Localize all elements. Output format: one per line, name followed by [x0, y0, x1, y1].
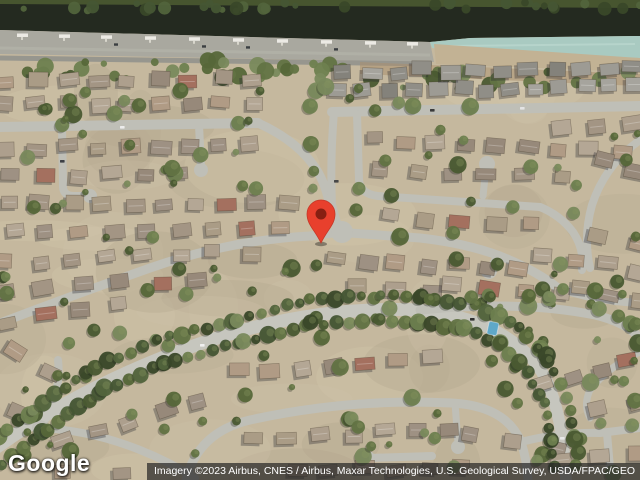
attribution-text: Imagery ©2023 Airbus, CNES / Airbus, Max… — [154, 465, 635, 477]
google-logo[interactable]: Google — [8, 450, 90, 477]
pin-body — [307, 200, 335, 243]
pin-inner-dot — [316, 209, 327, 220]
map-viewport[interactable]: Google Imagery ©2023 Airbus, CNES / Airb… — [0, 0, 640, 480]
attribution-bar: Imagery ©2023 Airbus, CNES / Airbus, Max… — [147, 463, 640, 480]
location-pin-marker[interactable] — [299, 191, 343, 247]
